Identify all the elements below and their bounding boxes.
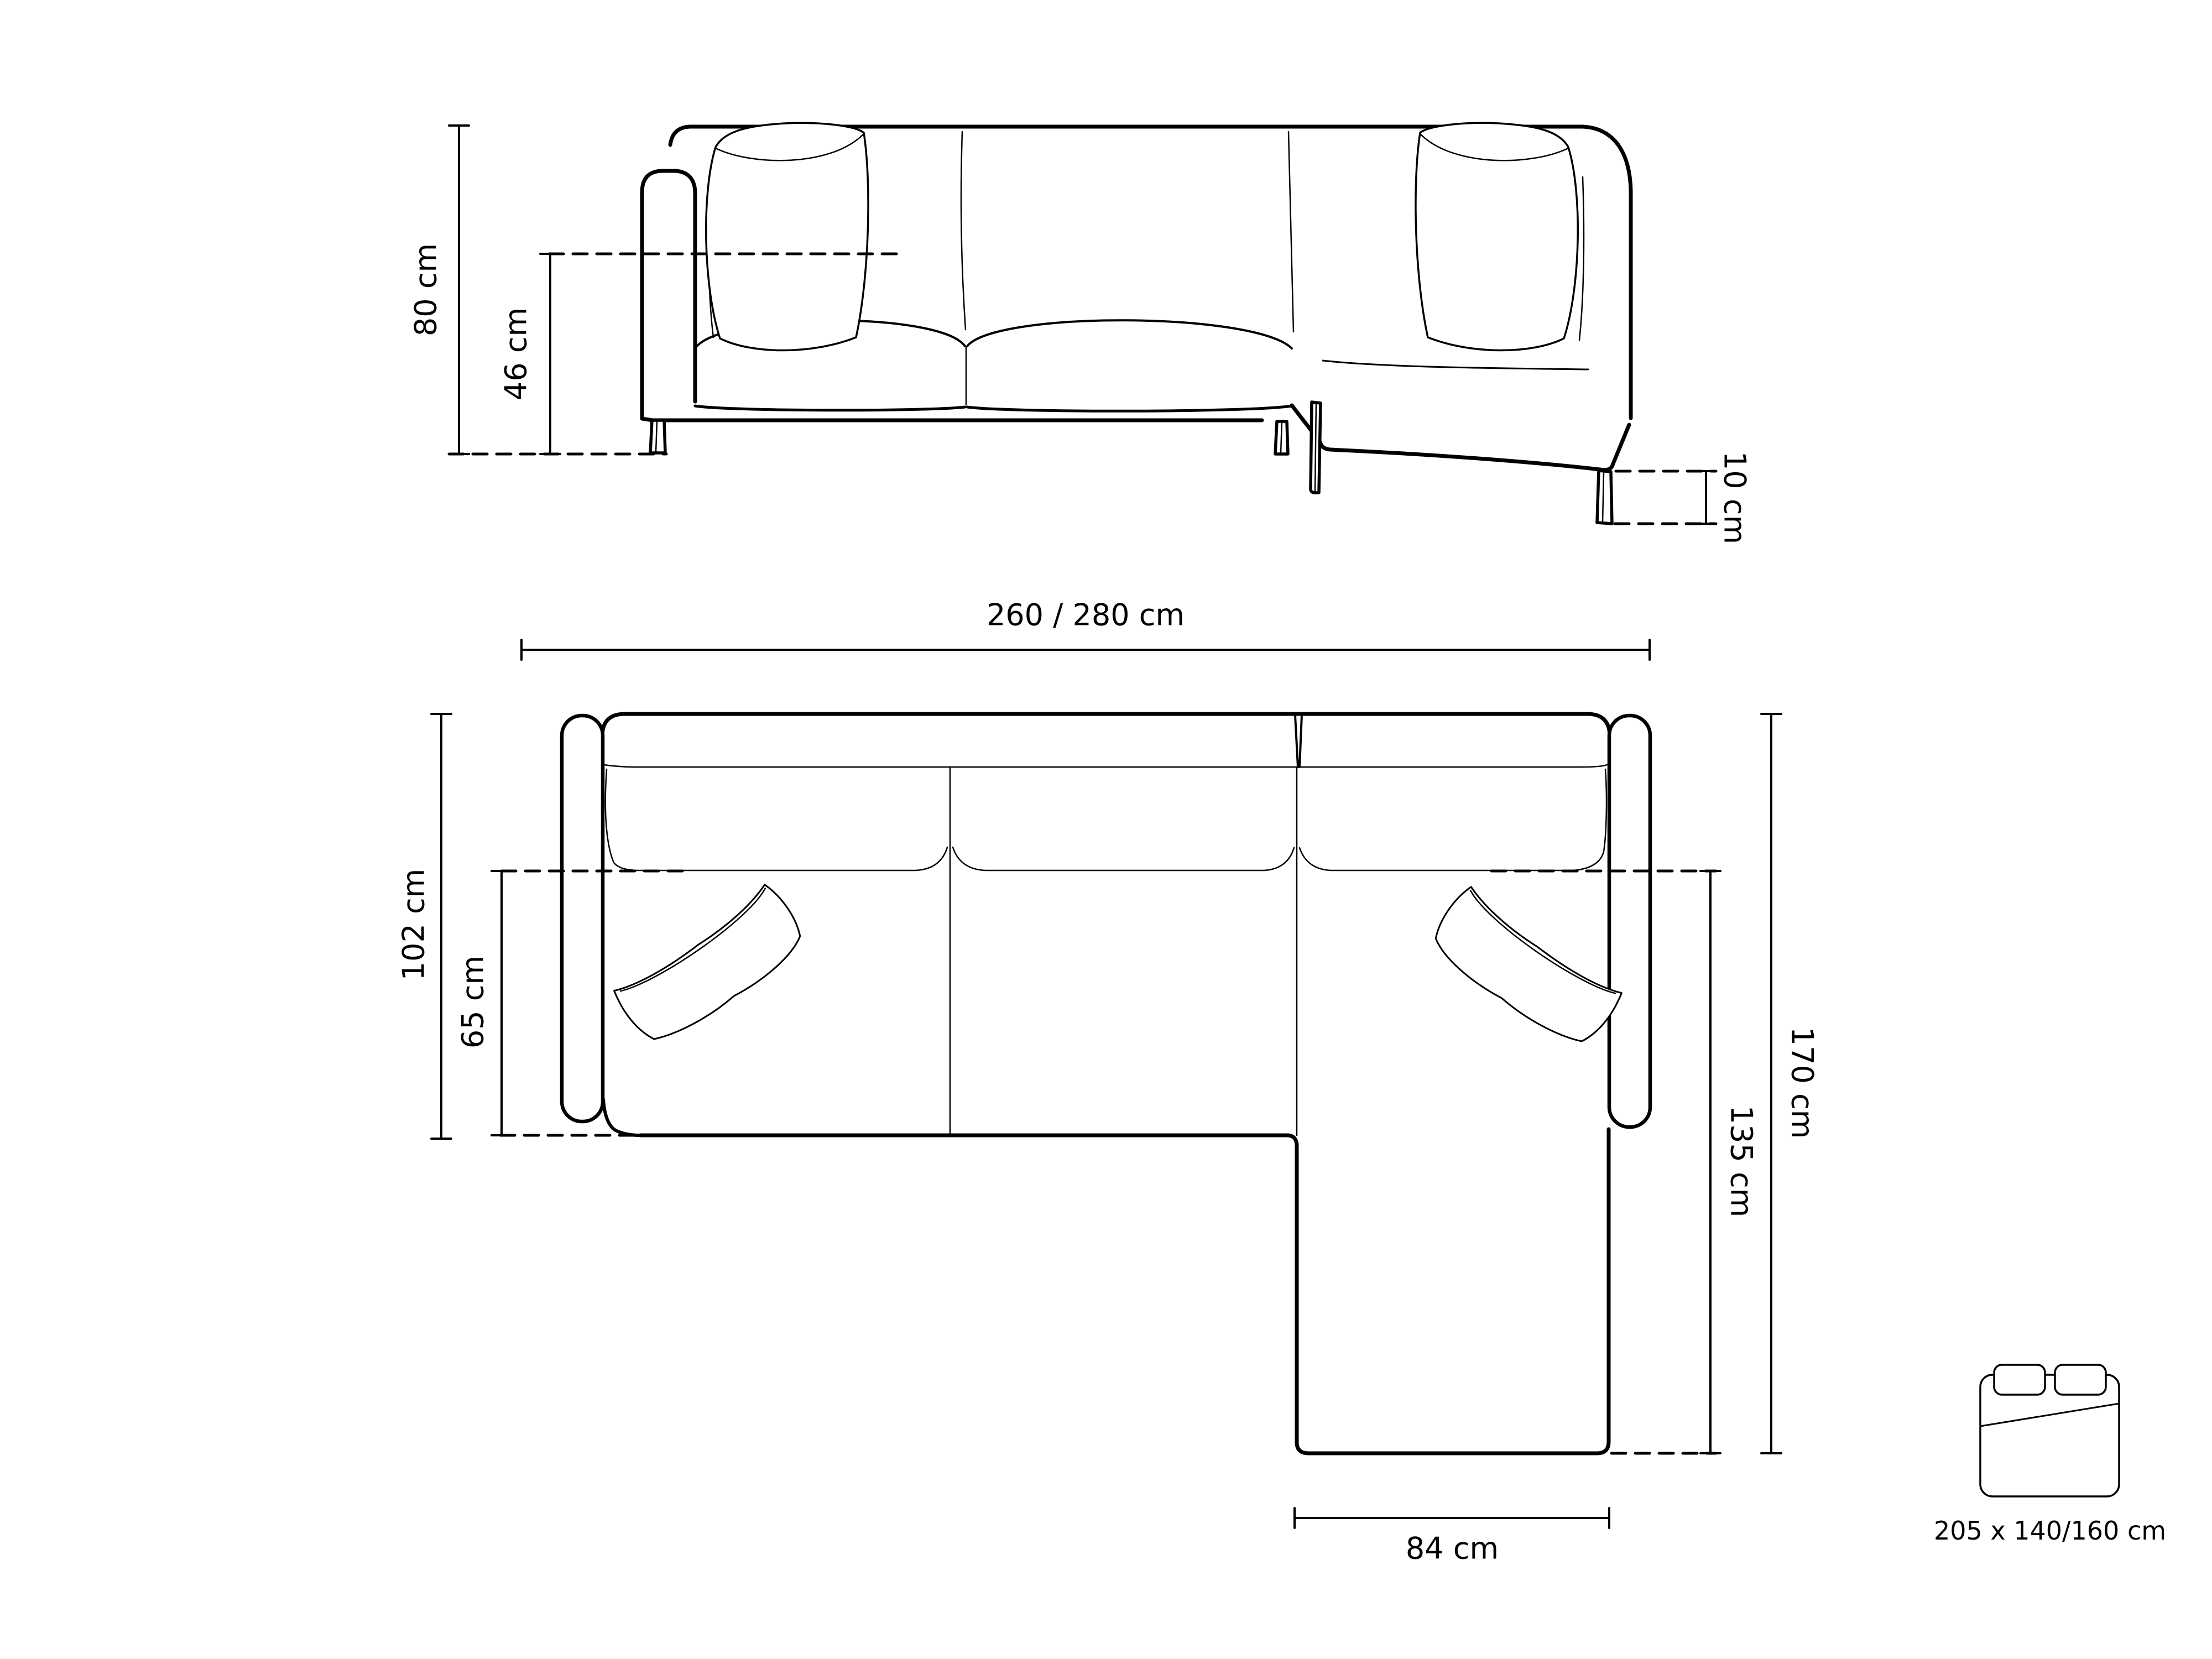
plan-pillow-left-outline <box>611 881 812 1053</box>
front-leg-chaise-right <box>1597 471 1612 524</box>
plan-backrest-band-line <box>604 765 1607 767</box>
dim-line-102cm <box>431 714 451 1139</box>
front-elevation-view <box>449 123 1716 524</box>
front-left-armrest <box>642 171 695 418</box>
dimension-drawing-sheet: 80 cm 46 cm 10 cm 260 / 280 cm 102 cm 65… <box>0 0 2212 1659</box>
plan-front-left-corner <box>603 1099 640 1135</box>
plan-backrest-cushion-1 <box>606 769 947 870</box>
front-leg-left <box>650 420 665 453</box>
dim-line-46cm <box>540 254 560 454</box>
plan-right-armrest <box>1609 716 1650 1127</box>
bed-icon <box>1980 1365 2119 1496</box>
plan-backrest-cushion-2 <box>953 847 1294 870</box>
plan-view <box>431 640 1781 1528</box>
plan-backrest-cushion-3 <box>1300 769 1606 870</box>
plan-pillow-right-outline <box>1423 884 1625 1056</box>
front-pillow-left <box>706 123 868 350</box>
sofa-technical-drawing <box>0 0 2212 1659</box>
plan-back-edge <box>602 714 1610 737</box>
plan-width-total-label: 260 / 280 cm <box>987 598 1185 633</box>
dim-line-135cm <box>1700 871 1720 1453</box>
sleeping-area-size-label: 205 x 140/160 cm <box>1934 1516 2166 1546</box>
front-chaise-seat-contour <box>1323 361 1588 369</box>
front-backrest-divider-left <box>961 132 966 330</box>
plan-pillow-right <box>1423 884 1625 1056</box>
plan-backrest-cushions <box>606 769 1606 870</box>
front-base-bottom-edge <box>642 419 1262 420</box>
plan-front-and-chaise-outline <box>640 1129 1609 1453</box>
plan-depth-with-chaise-label: 170 cm <box>1785 1027 1820 1139</box>
bed-icon-pillow-left <box>1994 1365 2045 1395</box>
plan-pillow-left <box>611 881 812 1053</box>
front-right-armrest-inner-edge <box>1579 177 1584 340</box>
dim-line-170cm <box>1761 714 1781 1453</box>
front-backrest-divider-right <box>1288 132 1293 332</box>
dim-line-260-280cm <box>521 640 1650 660</box>
front-chaise-outline <box>1292 405 1629 470</box>
plan-left-armrest <box>562 716 603 1121</box>
front-height-total-label: 80 cm <box>409 243 444 336</box>
plan-module-joint <box>1295 715 1302 767</box>
front-seat-front-contour <box>695 406 1292 411</box>
plan-depth-total-label: 102 cm <box>397 869 431 981</box>
plan-dimension-lines <box>431 640 1781 1528</box>
front-pillows <box>706 123 1578 350</box>
front-seat-height-label: 46 cm <box>499 307 534 400</box>
dim-line-65cm <box>492 871 512 1135</box>
front-pillow-right <box>1416 123 1578 350</box>
dim-line-84cm <box>1295 1508 1609 1528</box>
front-leg-height-label: 10 cm <box>1718 451 1752 544</box>
dim-line-10cm <box>1696 471 1716 524</box>
dim-line-80cm <box>449 126 469 454</box>
bed-icon-pillow-right <box>2055 1365 2106 1395</box>
plan-seat-depth-label: 65 cm <box>456 956 491 1048</box>
plan-chaise-depth-label: 135 cm <box>1724 1105 1759 1218</box>
plan-chaise-width-label: 84 cm <box>1406 1531 1499 1566</box>
